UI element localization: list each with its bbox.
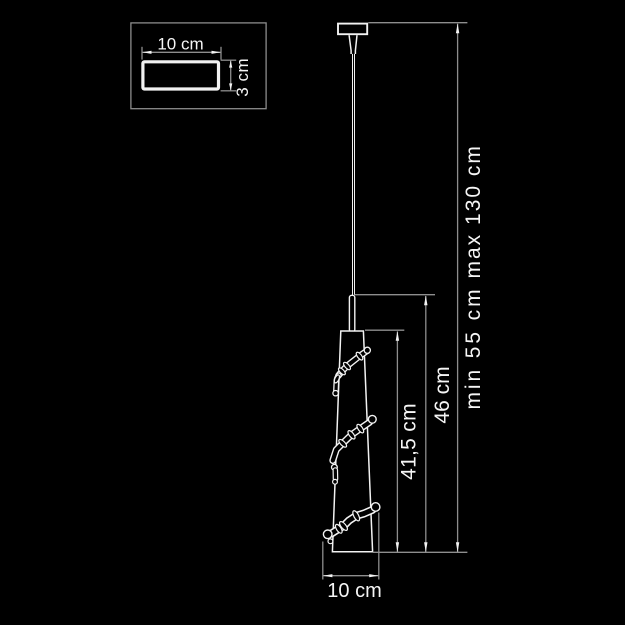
svg-text:10 cm: 10 cm xyxy=(327,580,381,602)
svg-text:3 cm: 3 cm xyxy=(233,58,252,97)
svg-text:max 130 cm: max 130 cm xyxy=(462,144,485,278)
svg-text:41,5 cm: 41,5 cm xyxy=(398,403,421,480)
svg-text:10 cm: 10 cm xyxy=(157,34,203,53)
svg-text:min 55 cm: min 55 cm xyxy=(462,287,485,410)
svg-text:46 cm: 46 cm xyxy=(431,366,454,423)
